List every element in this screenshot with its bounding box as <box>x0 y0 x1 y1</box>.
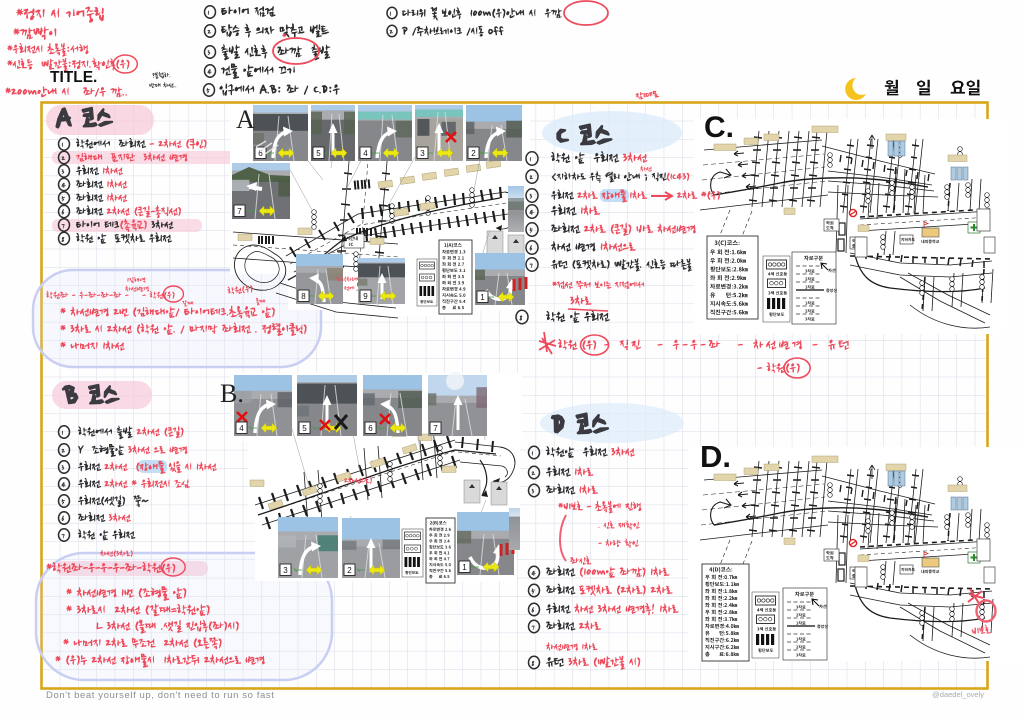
svg-text:7: 7 <box>433 424 438 433</box>
svg-text:7: 7 <box>237 207 242 216</box>
svg-text:1: 1 <box>480 293 485 302</box>
svg-text:4: 4 <box>363 149 368 158</box>
svg-text:C.: C. <box>704 111 734 144</box>
svg-text:D.: D. <box>700 439 731 474</box>
svg-text:5: 5 <box>316 149 321 158</box>
svg-text:9: 9 <box>363 292 368 301</box>
svg-text:3: 3 <box>283 566 288 575</box>
svg-text:3: 3 <box>420 149 425 158</box>
svg-text:B.: B. <box>220 379 244 408</box>
svg-text:2: 2 <box>471 149 476 158</box>
svg-text:1: 1 <box>462 563 467 572</box>
svg-text:TITLE.: TITLE. <box>50 69 97 86</box>
svg-text:A: A <box>236 105 255 134</box>
svg-text:2: 2 <box>347 566 352 575</box>
svg-text:6: 6 <box>368 424 373 433</box>
svg-text:@daedel_ovely: @daedel_ovely <box>932 690 984 699</box>
svg-text:4: 4 <box>239 424 244 433</box>
svg-text:8: 8 <box>301 292 306 301</box>
svg-text:Don't beat yourself up, don't: Don't beat yourself up, don't need to ru… <box>46 690 274 701</box>
svg-text:5: 5 <box>302 424 307 433</box>
